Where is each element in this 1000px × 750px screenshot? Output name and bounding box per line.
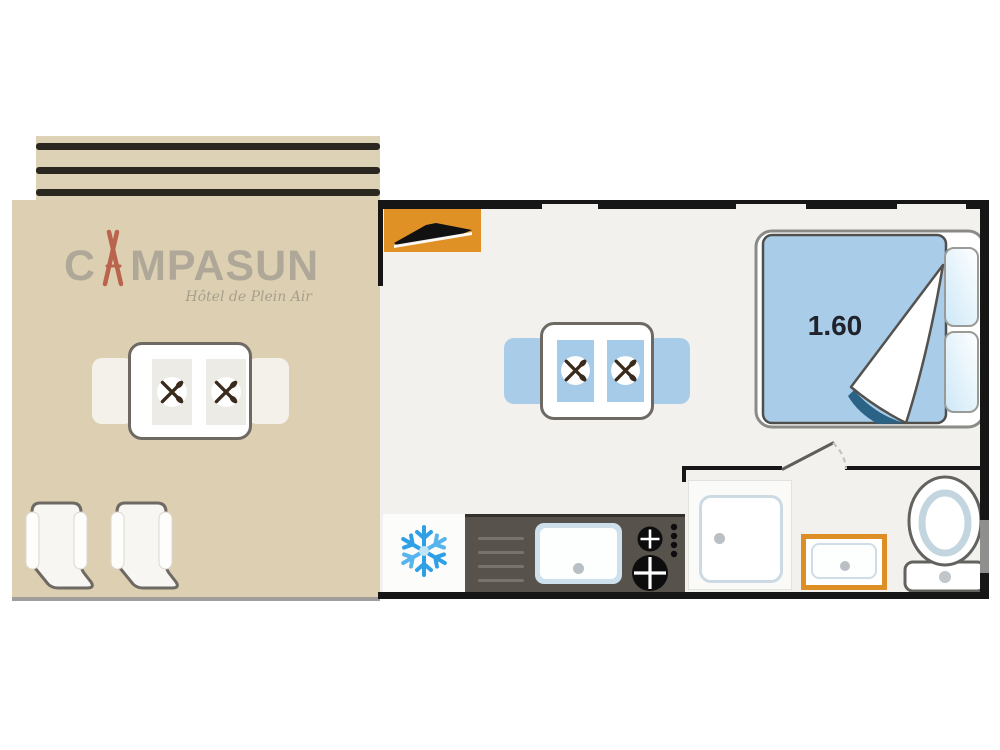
- sun-loungers: [16, 500, 196, 600]
- dining-placemat: [607, 340, 644, 402]
- window-right-wall: [980, 520, 989, 573]
- wall-bottom: [378, 592, 989, 599]
- door-swing-arc: [833, 443, 846, 469]
- shower: [688, 480, 792, 590]
- wall-top-segment: [598, 200, 736, 209]
- counter-vent-line: [478, 565, 524, 568]
- pillow: [945, 248, 978, 326]
- wall-top-segment: [378, 200, 542, 209]
- kitchen-sink: [535, 523, 622, 584]
- bathroom-wall-segment: [845, 466, 980, 470]
- terrace-chair-right: [247, 358, 289, 424]
- awning-stripe: [36, 143, 380, 150]
- awning-stripe: [36, 167, 380, 174]
- fridge-area: [383, 514, 465, 592]
- shower-drain: [714, 533, 725, 544]
- wall-top-segment: [806, 200, 897, 209]
- bathroom-door: [775, 434, 855, 472]
- crossed-cutlery-icon: [559, 354, 592, 387]
- washbasin-drain: [840, 561, 850, 571]
- terrace-awning: [36, 136, 380, 200]
- wall-left-stub: [378, 200, 383, 286]
- sink-drain: [573, 563, 584, 574]
- door-leaf: [783, 443, 833, 469]
- brand-name-prefix: C: [64, 247, 96, 286]
- washbasin: [801, 534, 887, 590]
- dining-placemat: [557, 340, 594, 402]
- counter-vent-line: [478, 537, 524, 540]
- entry-door-area: [384, 208, 481, 252]
- brand-logo: C MPASUN Hôtel de Plein Air: [64, 232, 316, 305]
- counter-vent-line: [478, 579, 524, 582]
- hob-burners: [622, 517, 684, 595]
- door-leaf-icon: [384, 208, 481, 252]
- tent-icon: [93, 232, 133, 286]
- terrace-placemat: [206, 359, 246, 425]
- pillow: [945, 332, 978, 412]
- bed-width-label: 1.60: [780, 310, 890, 342]
- awning-stripe: [36, 189, 380, 196]
- bathroom-wall-corner: [682, 466, 686, 482]
- brand-name-suffix: MPASUN: [130, 247, 319, 286]
- sun-lounger: [26, 503, 92, 588]
- sun-lounger: [111, 503, 177, 588]
- bathroom-wall-segment: [682, 466, 782, 470]
- kitchen-counter: [465, 514, 685, 593]
- crossed-cutlery-icon: [155, 375, 189, 409]
- toilet: [900, 472, 990, 594]
- shower-tray: [699, 495, 783, 583]
- counter-vent-line: [478, 551, 524, 554]
- mobile-home-floor-plan: C MPASUN Hôtel de Plein Air: [0, 0, 1000, 750]
- terrace-placemat: [152, 359, 192, 425]
- snowflake-icon: [396, 523, 452, 579]
- crossed-cutlery-icon: [609, 354, 642, 387]
- toilet-flush-button: [939, 571, 951, 583]
- brand-tagline: Hôtel de Plein Air: [64, 289, 316, 305]
- crossed-cutlery-icon: [209, 375, 243, 409]
